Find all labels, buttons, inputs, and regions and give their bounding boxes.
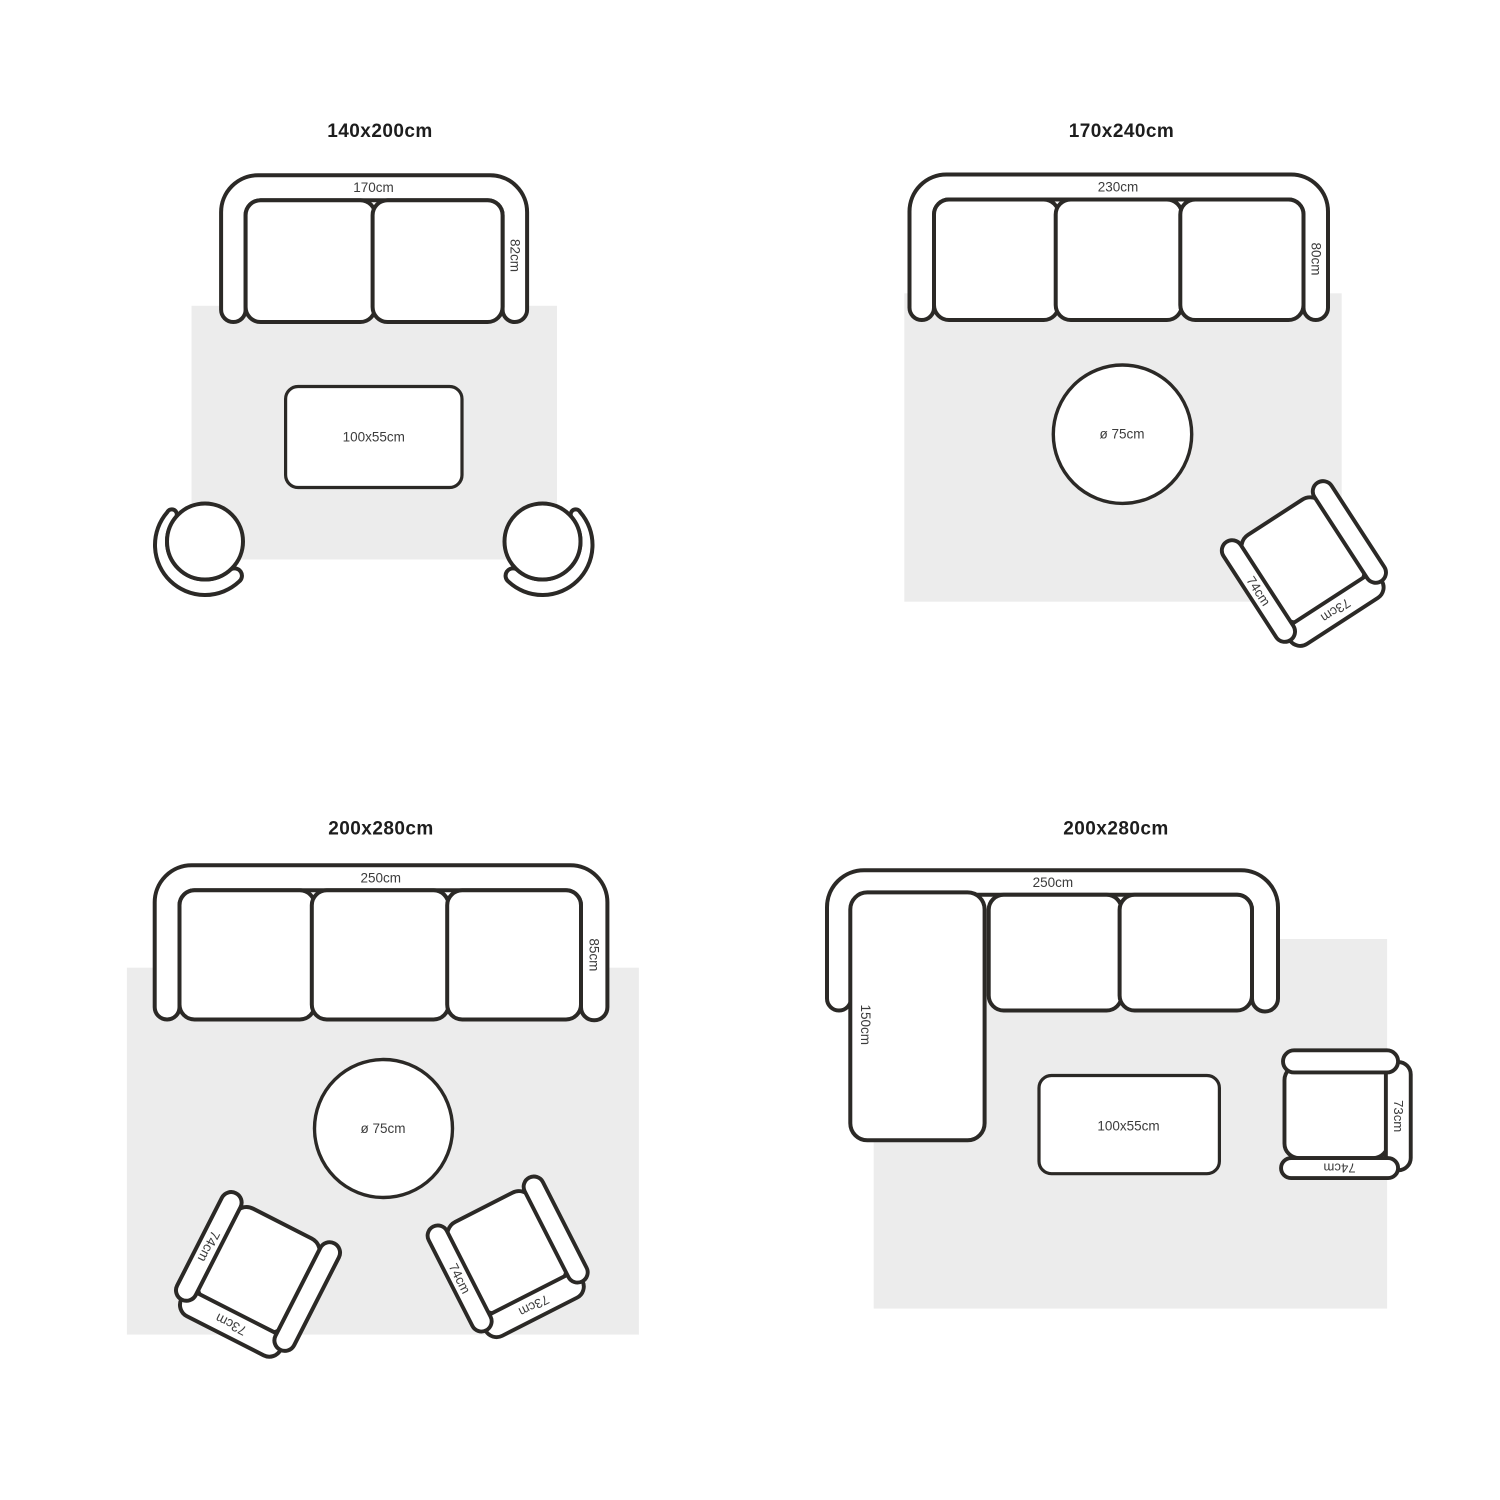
- svg-text:250cm: 250cm: [1033, 875, 1074, 890]
- svg-text:150cm: 150cm: [858, 1005, 873, 1046]
- svg-text:80cm: 80cm: [1308, 242, 1323, 275]
- svg-text:200x280cm: 200x280cm: [1063, 818, 1168, 839]
- svg-text:170cm: 170cm: [353, 180, 394, 195]
- svg-text:250cm: 250cm: [361, 870, 402, 885]
- svg-text:100x55cm: 100x55cm: [343, 430, 405, 445]
- svg-text:73cm: 73cm: [1391, 1100, 1406, 1132]
- svg-text:74cm: 74cm: [1323, 1161, 1355, 1176]
- svg-text:ø 75cm: ø 75cm: [360, 1121, 405, 1136]
- svg-text:230cm: 230cm: [1098, 180, 1139, 195]
- svg-text:82cm: 82cm: [507, 239, 522, 272]
- svg-text:200x280cm: 200x280cm: [328, 818, 433, 839]
- svg-text:85cm: 85cm: [587, 938, 602, 971]
- svg-text:170x240cm: 170x240cm: [1069, 121, 1174, 142]
- svg-text:100x55cm: 100x55cm: [1097, 1119, 1159, 1134]
- svg-text:ø 75cm: ø 75cm: [1099, 427, 1144, 442]
- svg-text:140x200cm: 140x200cm: [327, 121, 432, 142]
